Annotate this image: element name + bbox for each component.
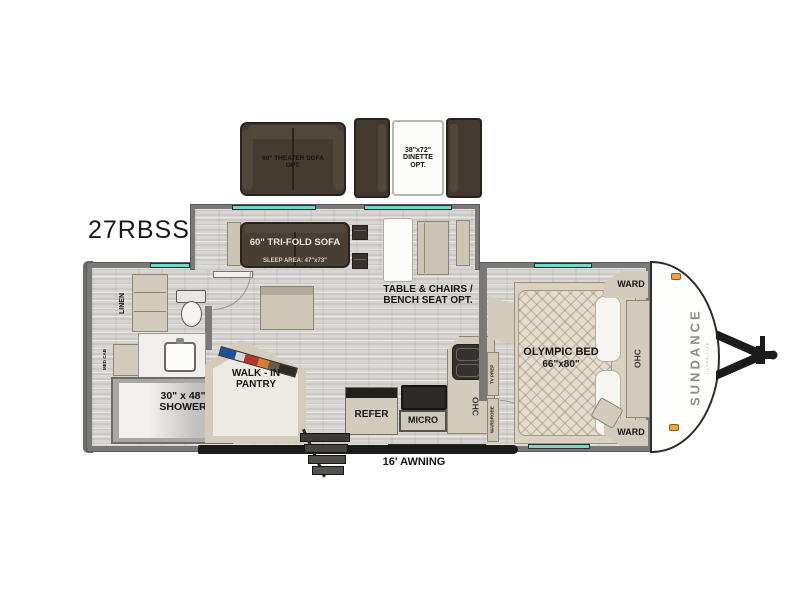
linen-label: LINEN: [116, 278, 130, 330]
slideout-window-left: [232, 205, 316, 210]
med-cabinet: [113, 344, 139, 376]
kitchen-sink-bowl-2: [456, 364, 480, 377]
awning-bar: [198, 445, 518, 454]
model-label: 27RBSS: [88, 216, 190, 245]
step-tread-1: [300, 433, 350, 442]
awning-label: 16' AWNING: [366, 457, 462, 469]
step-tread-3: [308, 455, 346, 464]
slideout-window-right: [364, 205, 452, 210]
vanity-faucet: [176, 338, 184, 344]
step-tread-2: [304, 444, 348, 453]
trifold-sofa-label: 60" TRI-FOLD SOFASLEEP AREA: 47"x73": [243, 234, 347, 264]
refer-top: [346, 388, 397, 398]
brand-label: SUNDANCE: [686, 290, 704, 424]
pantry-label: WALK - INPANTRY: [214, 366, 298, 394]
linen-shelf-line2: [134, 311, 166, 312]
med-cab-label: MED CAB: [100, 342, 111, 378]
ward-rear-bottom-label: WARD: [612, 424, 650, 442]
dinette-option: 38"x72"DINETTEOPT.: [354, 114, 482, 202]
slideout-end-table-left: [227, 222, 241, 266]
bench-seat-line: [424, 223, 425, 273]
theater-sofa-label: 60" THEATER SOFAOPT.: [248, 148, 338, 176]
bed-label: OLYMPIC BED66"x80": [520, 344, 602, 374]
slideout-end-table-right: [456, 220, 470, 266]
bench-seat: [417, 221, 449, 275]
dinette-bench-right-seat: [450, 124, 458, 192]
marker-light-top: [671, 273, 681, 280]
dining-table: [383, 218, 413, 282]
floorplan-canvas: 27RBSS 60" THEATER SOFAOPT. 38"x72"DINET…: [0, 0, 800, 600]
vanity-sink: [164, 342, 196, 372]
hall-cabinet-top: [261, 287, 313, 295]
brand-sub-label: ULTRA-LITE: [703, 318, 711, 398]
window-bedroom-top: [534, 263, 592, 268]
refer-label: REFER: [345, 402, 398, 428]
step-tread-4: [312, 466, 344, 475]
dining-chair-1: [352, 225, 368, 240]
micro-label: MICRO: [399, 410, 447, 432]
cooktop: [401, 385, 447, 410]
linen-cabinet: [132, 274, 168, 332]
dining-chair-2-slat: [354, 259, 366, 260]
dining-chair-2: [352, 253, 368, 269]
dinette-bench-left-seat: [378, 124, 386, 192]
kitchen-sink-bowl-1: [456, 348, 480, 361]
marker-light-bottom: [669, 424, 679, 431]
bedroom-ohc-label: OHC: [626, 300, 650, 418]
bathroom-wall: [205, 306, 212, 350]
window-bedroom-bottom: [528, 444, 590, 449]
theater-sofa-option: 60" THEATER SOFAOPT.: [240, 122, 346, 196]
table-chairs-option-label: TABLE & CHAIRS /BENCH SEAT OPT.: [376, 284, 480, 308]
linen-shelf-line1: [134, 292, 166, 293]
dinette-label: 38"x72"DINETTEOPT.: [394, 124, 442, 192]
bedroom-wall: [479, 266, 487, 401]
window-rear-top: [150, 263, 190, 268]
ward-front-top-label: WARD: [612, 275, 650, 295]
tv-prep-label: TV PREP: [487, 352, 499, 396]
toilet-bowl: [181, 301, 202, 327]
entry-steps: [296, 430, 354, 478]
dining-chair-1-slat: [354, 230, 366, 231]
hitch-tongue: [714, 322, 778, 388]
wardrobe-label: WARDROBE: [487, 398, 499, 442]
